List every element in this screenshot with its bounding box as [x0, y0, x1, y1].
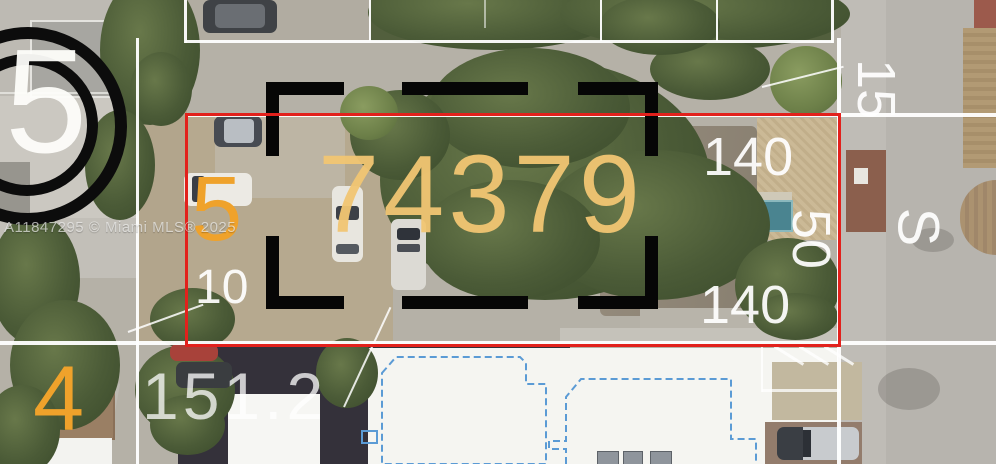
ac-unit — [623, 451, 643, 464]
aerial-parcel-map: 5 74379 5 4 140 50 140 15 S 10 151.2 A11… — [0, 0, 996, 464]
dimension-street-top: 15 — [849, 59, 903, 119]
lot-number-bottom-left: 4 — [33, 353, 84, 445]
dimension-right: 50 — [784, 209, 838, 269]
parcel-number-label: 74379 — [318, 140, 644, 250]
street-letter: S — [888, 208, 946, 247]
dimension-left: 10 — [195, 264, 248, 312]
dimension-lower: 151.2 — [142, 363, 327, 429]
lot-number-left: 5 — [191, 163, 242, 255]
dimension-top: 140 — [703, 130, 793, 184]
ac-unit — [597, 451, 619, 464]
setback-dash — [402, 82, 528, 95]
ac-unit — [650, 451, 672, 464]
dimension-bottom: 140 — [700, 278, 790, 332]
lot-number-circled: 5 — [5, 28, 87, 176]
mls-watermark: A11847295 © Miami MLS® 2025 — [4, 220, 236, 235]
